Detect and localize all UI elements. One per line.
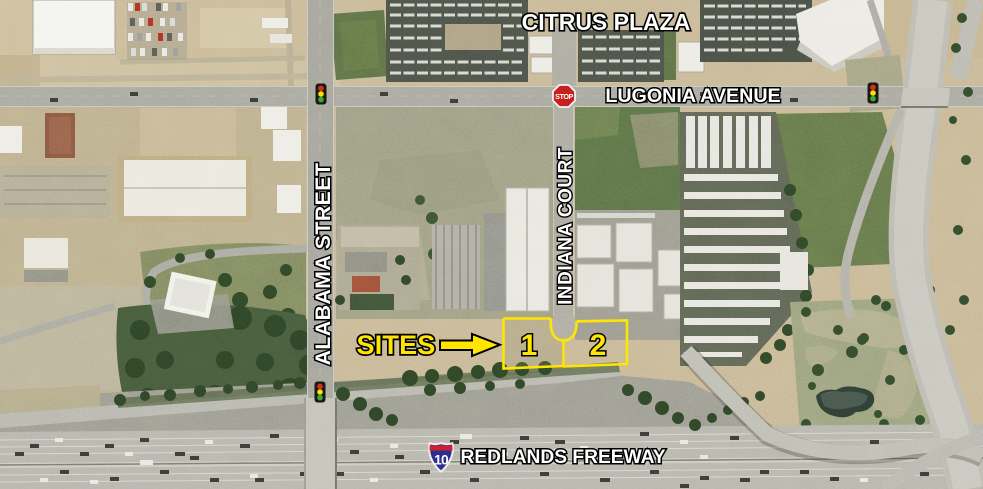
svg-text:2: 2 [590, 329, 607, 362]
svg-text:1: 1 [521, 329, 538, 362]
svg-text:REDLANDS FREEWAY: REDLANDS FREEWAY [460, 447, 665, 468]
svg-text:STOP: STOP [555, 92, 573, 101]
svg-text:LUGONIA AVENUE: LUGONIA AVENUE [605, 85, 780, 107]
svg-text:CITRUS PLAZA: CITRUS PLAZA [522, 9, 691, 35]
svg-text:INDIANA COURT: INDIANA COURT [556, 147, 577, 305]
svg-text:SITES: SITES [356, 330, 435, 360]
svg-text:ALABAMA STREET: ALABAMA STREET [312, 163, 335, 366]
svg-text:10: 10 [434, 453, 449, 468]
